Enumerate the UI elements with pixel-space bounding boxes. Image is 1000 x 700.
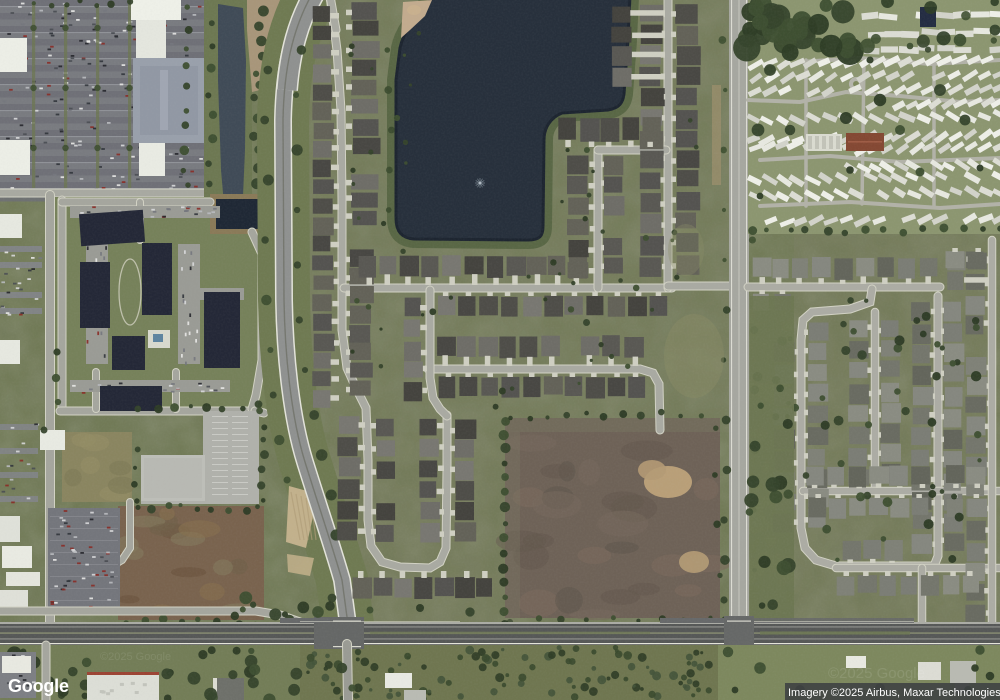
svg-text:©2025 Google: ©2025 Google [828, 665, 925, 682]
svg-text:©2025 Google: ©2025 Google [100, 651, 171, 663]
svg-text:Google: Google [8, 676, 69, 696]
svg-text:Imagery ©2025 Airbus, Maxar Te: Imagery ©2025 Airbus, Maxar Technologies [788, 687, 1000, 699]
